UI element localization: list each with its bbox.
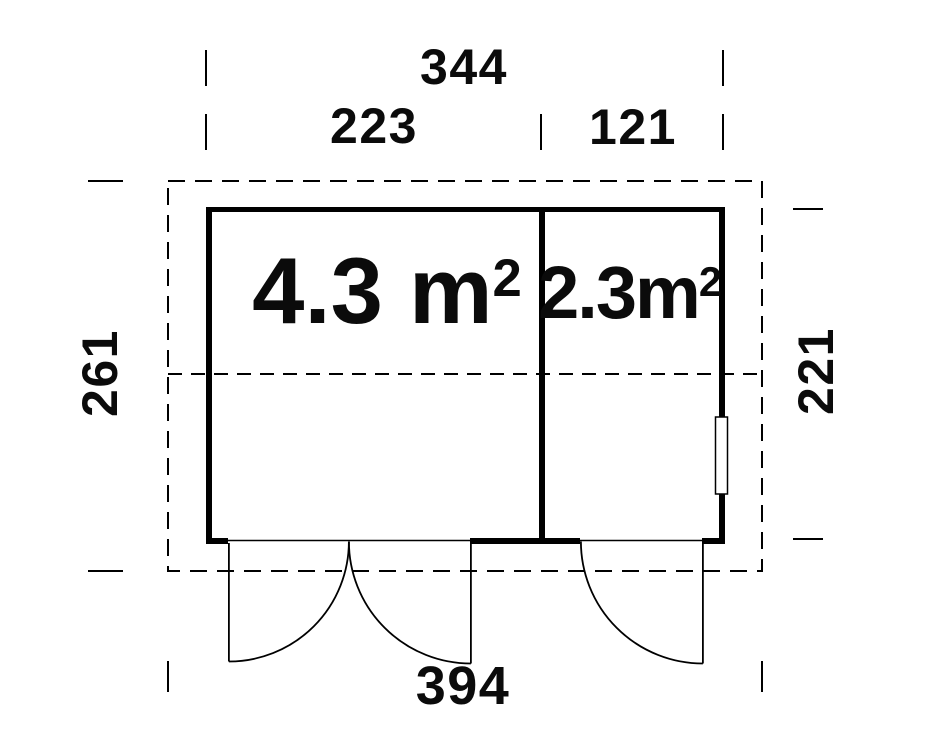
room-left-area-label: 4.3 m2 xyxy=(252,244,522,338)
double-door-right-arc xyxy=(349,542,471,664)
window-right-wall-icon xyxy=(716,417,728,494)
single-door-arc xyxy=(581,542,703,664)
dim-label-bottom-width: 394 xyxy=(416,659,511,713)
wall-top xyxy=(206,207,725,212)
dim-label-right-height: 221 xyxy=(791,327,841,415)
dim-label-left-height: 261 xyxy=(75,329,125,417)
dimension-ticks xyxy=(88,50,823,692)
dim-label-right-room-width: 121 xyxy=(589,102,677,152)
room-left-area-superscript: 2 xyxy=(493,249,522,308)
wall-bottom-right-stub xyxy=(702,538,725,544)
room-right-area-superscript: 2 xyxy=(699,258,722,305)
dim-label-left-room-width: 223 xyxy=(330,101,418,151)
wall-bottom-left-stub xyxy=(206,538,228,544)
wall-bottom-middle-stub xyxy=(470,538,580,544)
single-door-swing-icon xyxy=(581,542,703,664)
double-door-left-arc xyxy=(229,542,349,662)
floor-plan-canvas: 344 223 121 261 221 394 4.3 m2 2.3m2 xyxy=(0,0,948,740)
room-right-area-value: 2.3m xyxy=(538,251,699,334)
dim-label-overall-width: 344 xyxy=(420,42,508,92)
double-door-swing-icon xyxy=(229,542,471,664)
room-right-area-label: 2.3m2 xyxy=(538,256,722,330)
room-left-area-value: 4.3 m xyxy=(252,238,492,343)
wall-left xyxy=(206,207,212,544)
wall-right-lower xyxy=(719,494,725,544)
